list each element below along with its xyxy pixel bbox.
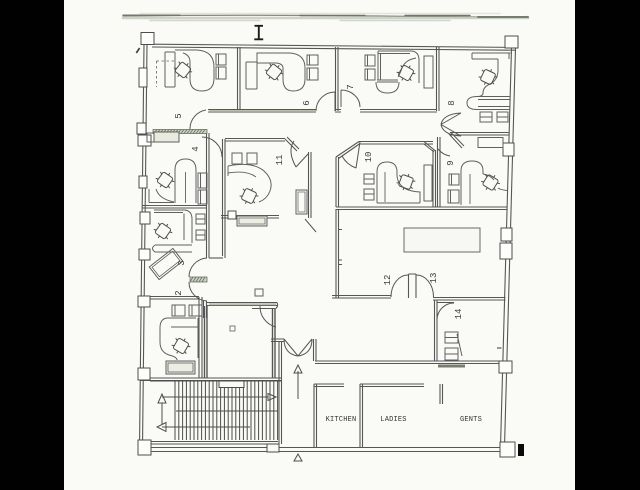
svg-text:11: 11 [275, 155, 285, 166]
svg-text:LADIES: LADIES [380, 416, 406, 424]
svg-text:KITCHEN: KITCHEN [326, 416, 357, 424]
svg-text:8: 8 [447, 100, 457, 105]
svg-text:2: 2 [174, 290, 184, 295]
svg-text:12: 12 [383, 275, 393, 286]
svg-text:13: 13 [429, 273, 439, 284]
svg-text:3: 3 [177, 260, 187, 265]
svg-text:6: 6 [302, 100, 312, 105]
svg-text:4: 4 [191, 146, 201, 151]
svg-text:5: 5 [174, 113, 184, 118]
svg-text:10: 10 [364, 152, 374, 163]
svg-text:9: 9 [446, 160, 456, 165]
svg-text:14: 14 [454, 309, 464, 320]
svg-text:7: 7 [346, 84, 356, 89]
svg-text:GENTS: GENTS [460, 416, 482, 424]
